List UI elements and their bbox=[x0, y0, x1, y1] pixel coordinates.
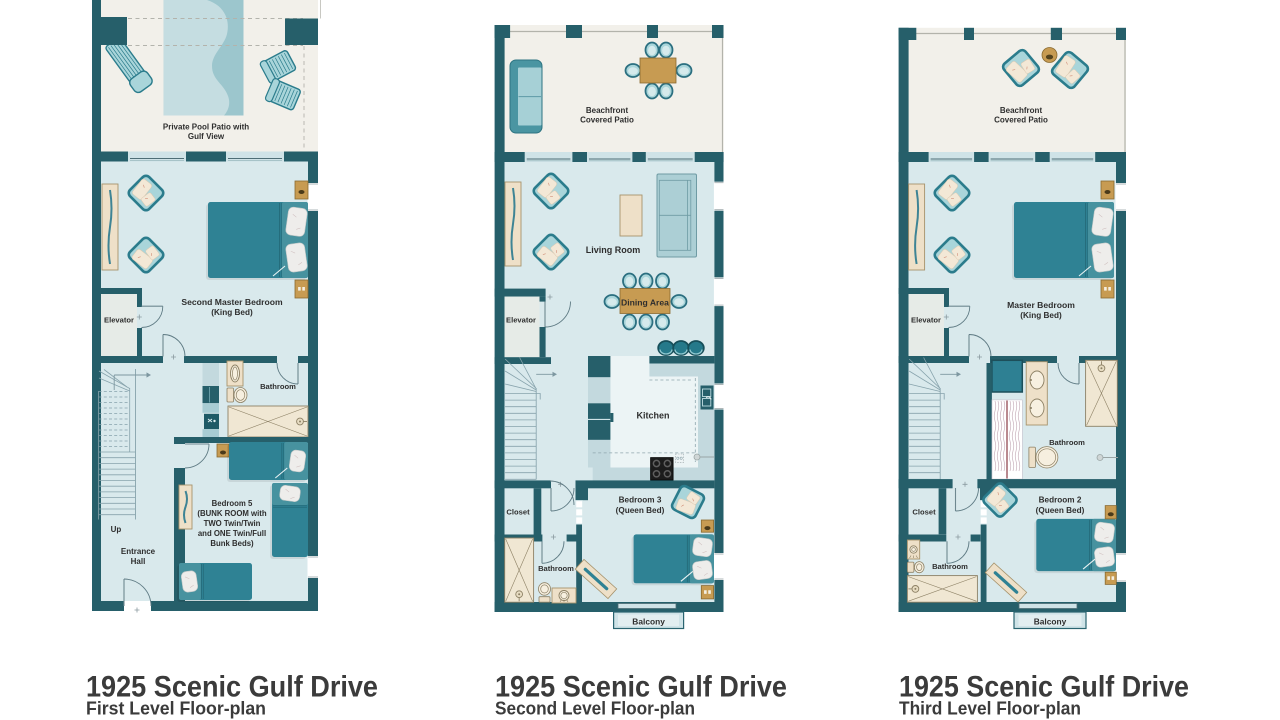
svg-text:Elevator: Elevator bbox=[506, 316, 536, 325]
svg-text:Balcony: Balcony bbox=[1034, 617, 1067, 627]
svg-text:Living Room: Living Room bbox=[586, 245, 641, 255]
svg-text:Balcony: Balcony bbox=[632, 617, 665, 627]
svg-text:Second Master Bedroom: Second Master Bedroom bbox=[181, 297, 283, 307]
svg-text:Kitchen: Kitchen bbox=[636, 411, 669, 421]
svg-text:Third Level Floor-plan: Third Level Floor-plan bbox=[899, 698, 1081, 719]
svg-text:Bunk Beds): Bunk Beds) bbox=[210, 539, 254, 548]
svg-text:Covered Patio: Covered Patio bbox=[994, 116, 1048, 125]
svg-text:Beachfront: Beachfront bbox=[586, 106, 629, 115]
svg-text:(King Bed): (King Bed) bbox=[211, 308, 253, 317]
svg-text:Dining Area: Dining Area bbox=[621, 298, 669, 308]
svg-text:and ONE Twin/Full: and ONE Twin/Full bbox=[198, 529, 266, 538]
svg-text:Elevator: Elevator bbox=[104, 316, 134, 325]
svg-text:Closet: Closet bbox=[506, 508, 530, 517]
svg-text:(King Bed): (King Bed) bbox=[1020, 311, 1062, 320]
svg-text:Elevator: Elevator bbox=[911, 316, 941, 325]
svg-text:Second Level Floor-plan: Second Level Floor-plan bbox=[495, 698, 695, 719]
svg-text:First Level Floor-plan: First Level Floor-plan bbox=[86, 698, 266, 719]
svg-text:(Queen Bed): (Queen Bed) bbox=[616, 506, 665, 515]
svg-text:Hall: Hall bbox=[131, 557, 146, 566]
svg-text:Beachfront: Beachfront bbox=[1000, 106, 1043, 115]
svg-text:TWO Twin/Twin: TWO Twin/Twin bbox=[204, 519, 261, 528]
svg-text:Bedroom 3: Bedroom 3 bbox=[619, 496, 662, 505]
svg-text:Entrance: Entrance bbox=[121, 547, 156, 556]
svg-text:Master Bedroom: Master Bedroom bbox=[1007, 300, 1075, 310]
svg-text:(Queen Bed): (Queen Bed) bbox=[1036, 506, 1085, 515]
svg-text:Bathroom: Bathroom bbox=[1049, 438, 1085, 447]
svg-text:Gulf View: Gulf View bbox=[188, 132, 225, 141]
svg-text:Private Pool Patio with: Private Pool Patio with bbox=[163, 123, 249, 132]
svg-text:Bathroom: Bathroom bbox=[932, 562, 968, 571]
svg-text:(BUNK ROOM with: (BUNK ROOM with bbox=[197, 509, 267, 518]
svg-text:Up: Up bbox=[111, 525, 122, 534]
svg-text:Bathroom: Bathroom bbox=[260, 382, 296, 391]
svg-text:Closet: Closet bbox=[912, 508, 936, 517]
svg-text:Bedroom 2: Bedroom 2 bbox=[1039, 496, 1082, 505]
svg-text:Bedroom 5: Bedroom 5 bbox=[212, 499, 253, 508]
svg-text:Covered Patio: Covered Patio bbox=[580, 116, 634, 125]
svg-text:Bathroom: Bathroom bbox=[538, 564, 574, 573]
